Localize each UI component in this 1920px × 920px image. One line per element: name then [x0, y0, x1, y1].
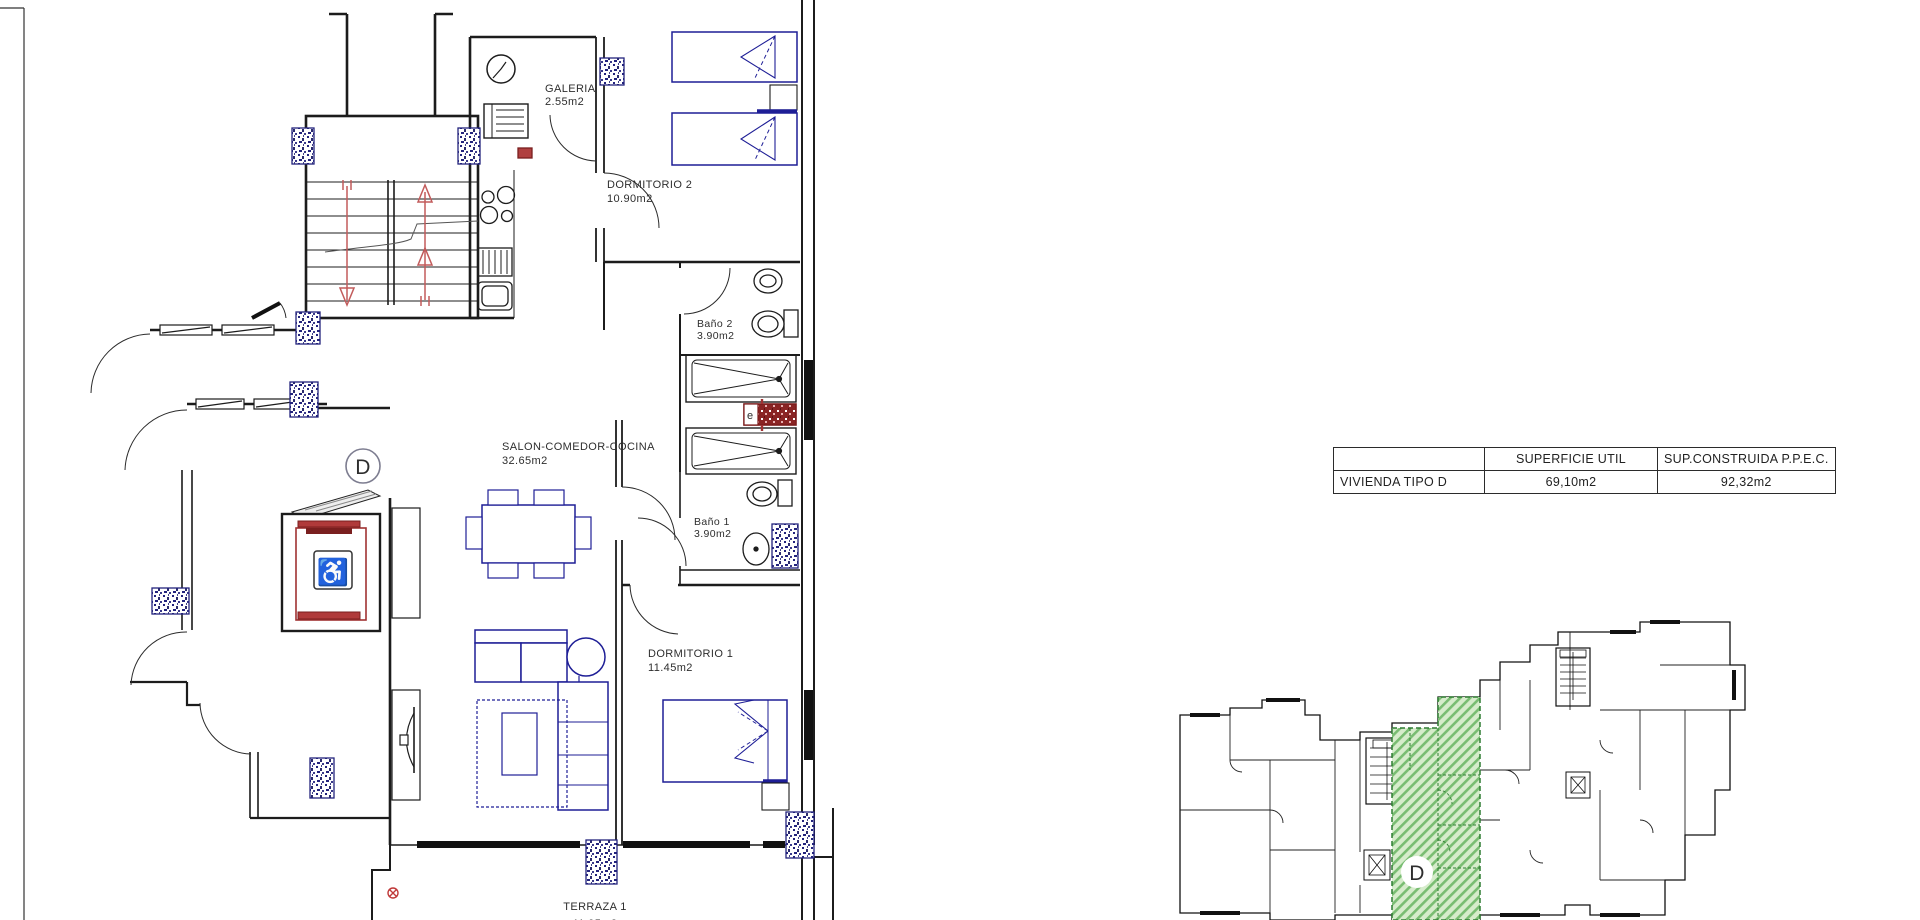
header-sup-construida: SUP.CONSTRUIDA P.P.E.C.	[1658, 448, 1836, 471]
installation-duct: e	[744, 399, 796, 431]
sheet-frame	[0, 8, 24, 920]
header-superficie-util: SUPERFICIE UTIL	[1485, 448, 1658, 471]
label-terraza1: TERRAZA 1	[563, 901, 627, 913]
label-dormitorio1: DORMITORIO 1	[648, 648, 733, 660]
table-data-row: VIVIENDA TIPO D 69,10m2 92,32m2	[1334, 471, 1836, 494]
label-galeria-area: 2.55m2	[545, 96, 584, 108]
label-galeria: GALERIA	[545, 83, 596, 95]
windows	[160, 325, 302, 409]
label-dormitorio1-area: 11.45m2	[648, 662, 693, 674]
label-dormitorio2: DORMITORIO 2	[607, 179, 692, 191]
staircase	[306, 180, 478, 305]
label-salon: SALON-COMEDOR-COCINA	[502, 441, 655, 453]
drain-mark	[388, 888, 398, 898]
door-swings	[91, 115, 730, 754]
label-dormitorio2-area: 10.90m2	[607, 193, 653, 205]
duct-label: e	[747, 410, 754, 422]
wheelchair-icon: ♿	[317, 557, 350, 587]
unit-marker: D	[346, 449, 380, 483]
unit-marker-letter: D	[355, 456, 371, 479]
label-salon-area: 32.65m2	[502, 455, 548, 467]
areas-summary-table: SUPERFICIE UTIL SUP.CONSTRUIDA P.P.E.C. …	[1333, 447, 1836, 494]
superficie-value-cell: 69,10m2	[1485, 471, 1658, 494]
label-bano2: Baño 2	[697, 318, 733, 330]
label-bano1: Baño 1	[694, 516, 730, 528]
key-unit-marker-letter: D	[1409, 862, 1425, 885]
kitchen-fixtures	[478, 55, 532, 318]
label-bano1-area: 3.90m2	[694, 528, 731, 540]
vivienda-tipo-cell: VIVIENDA TIPO D	[1334, 471, 1485, 494]
header-empty-cell	[1334, 448, 1485, 471]
elevator: ♿	[282, 490, 380, 631]
sideboards	[392, 508, 420, 800]
label-bano2-area: 3.90m2	[697, 330, 734, 342]
key-highlighted-unit: D	[1392, 697, 1480, 920]
construida-value-cell: 92,32m2	[1658, 471, 1836, 494]
entry-door	[252, 303, 286, 318]
blueprint-page: ♿ D	[0, 0, 1920, 920]
key-plan-drawing: D	[1170, 620, 1870, 920]
table-header-row: SUPERFICIE UTIL SUP.CONSTRUIDA P.P.E.C.	[1334, 448, 1836, 471]
floor-plan-drawing: ♿ D	[0, 0, 880, 920]
